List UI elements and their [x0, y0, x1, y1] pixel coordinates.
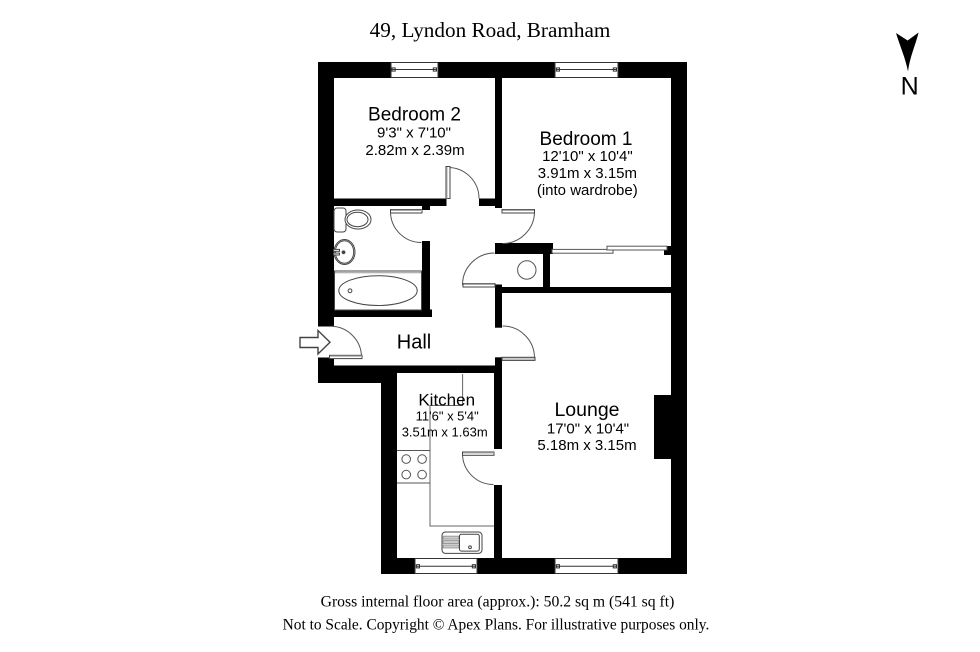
svg-text:9'3" x 7'10": 9'3" x 7'10" [377, 125, 451, 142]
svg-text:Gross internal floor area (app: Gross internal floor area (approx.): 50.… [321, 593, 675, 610]
svg-text:3.51m x 1.63m: 3.51m x 1.63m [402, 425, 488, 440]
svg-text:Kitchen: Kitchen [418, 390, 475, 409]
svg-text:(into wardrobe): (into wardrobe) [537, 182, 638, 199]
svg-text:17'0" x 10'4": 17'0" x 10'4" [547, 421, 629, 438]
svg-text:Not to Scale. Copyright © Apex: Not to Scale. Copyright © Apex Plans. Fo… [283, 616, 710, 633]
svg-text:N: N [901, 73, 919, 101]
svg-text:3.91m x 3.15m: 3.91m x 3.15m [538, 165, 637, 182]
svg-text:Hall: Hall [397, 331, 431, 353]
svg-text:49, Lyndon Road, Bramham: 49, Lyndon Road, Bramham [370, 18, 611, 42]
svg-text:11'6" x 5'4": 11'6" x 5'4" [416, 408, 479, 423]
svg-text:Lounge: Lounge [554, 399, 619, 421]
svg-text:2.82m x 2.39m: 2.82m x 2.39m [365, 142, 464, 159]
svg-text:Bedroom 1: Bedroom 1 [540, 129, 633, 150]
svg-text:12'10" x 10'4": 12'10" x 10'4" [542, 148, 633, 165]
svg-text:5.18m x 3.15m: 5.18m x 3.15m [537, 437, 636, 454]
svg-text:Bedroom 2: Bedroom 2 [368, 105, 461, 126]
